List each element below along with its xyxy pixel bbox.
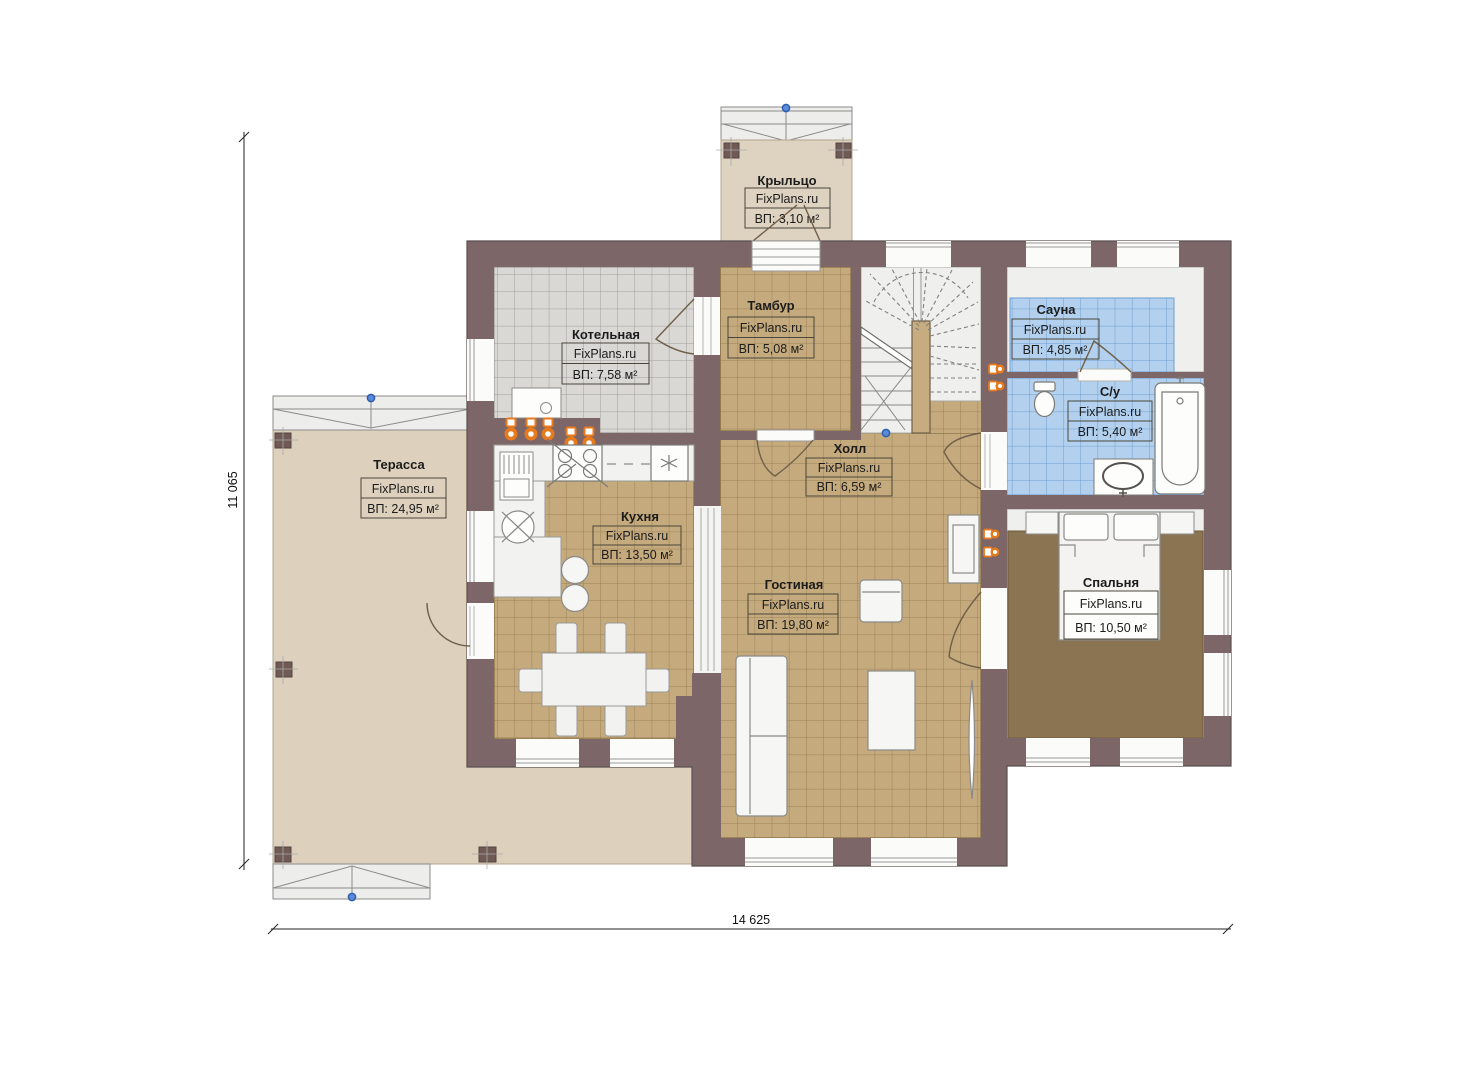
svg-text:11 065: 11 065 xyxy=(226,471,240,508)
svg-text:FixPlans.ru: FixPlans.ru xyxy=(818,461,881,475)
svg-text:Холл: Холл xyxy=(834,441,867,456)
svg-text:ВП: 6,59 м²: ВП: 6,59 м² xyxy=(817,480,882,494)
svg-text:Сауна: Сауна xyxy=(1036,302,1076,317)
svg-text:Кухня: Кухня xyxy=(621,509,659,524)
svg-text:ВП: 19,80 м²: ВП: 19,80 м² xyxy=(757,618,829,632)
svg-text:14 625: 14 625 xyxy=(732,913,770,927)
svg-text:ВП: 13,50 м²: ВП: 13,50 м² xyxy=(601,548,673,562)
svg-text:Тамбур: Тамбур xyxy=(747,298,794,313)
svg-text:С/у: С/у xyxy=(1100,384,1121,399)
svg-text:ВП: 5,08 м²: ВП: 5,08 м² xyxy=(739,342,804,356)
svg-text:FixPlans.ru: FixPlans.ru xyxy=(756,192,819,206)
svg-text:FixPlans.ru: FixPlans.ru xyxy=(1079,405,1142,419)
svg-text:ВП: 4,85 м²: ВП: 4,85 м² xyxy=(1023,343,1088,357)
svg-text:Терасса: Терасса xyxy=(373,457,425,472)
svg-text:ВП: 5,40 м²: ВП: 5,40 м² xyxy=(1078,425,1143,439)
svg-text:Крыльцо: Крыльцо xyxy=(757,173,816,188)
svg-text:FixPlans.ru: FixPlans.ru xyxy=(574,347,637,361)
svg-text:Гостиная: Гостиная xyxy=(765,577,824,592)
svg-text:FixPlans.ru: FixPlans.ru xyxy=(762,598,825,612)
svg-text:FixPlans.ru: FixPlans.ru xyxy=(740,321,803,335)
svg-text:Котельная: Котельная xyxy=(572,327,640,342)
svg-text:Спальня: Спальня xyxy=(1083,575,1139,590)
svg-text:ВП: 24,95 м²: ВП: 24,95 м² xyxy=(367,502,439,516)
svg-text:FixPlans.ru: FixPlans.ru xyxy=(606,529,669,543)
svg-text:FixPlans.ru: FixPlans.ru xyxy=(1080,597,1143,611)
svg-text:FixPlans.ru: FixPlans.ru xyxy=(1024,323,1087,337)
svg-text:FixPlans.ru: FixPlans.ru xyxy=(372,482,435,496)
svg-text:ВП: 7,58 м²: ВП: 7,58 м² xyxy=(573,368,638,382)
svg-text:ВП: 10,50 м²: ВП: 10,50 м² xyxy=(1075,621,1147,635)
